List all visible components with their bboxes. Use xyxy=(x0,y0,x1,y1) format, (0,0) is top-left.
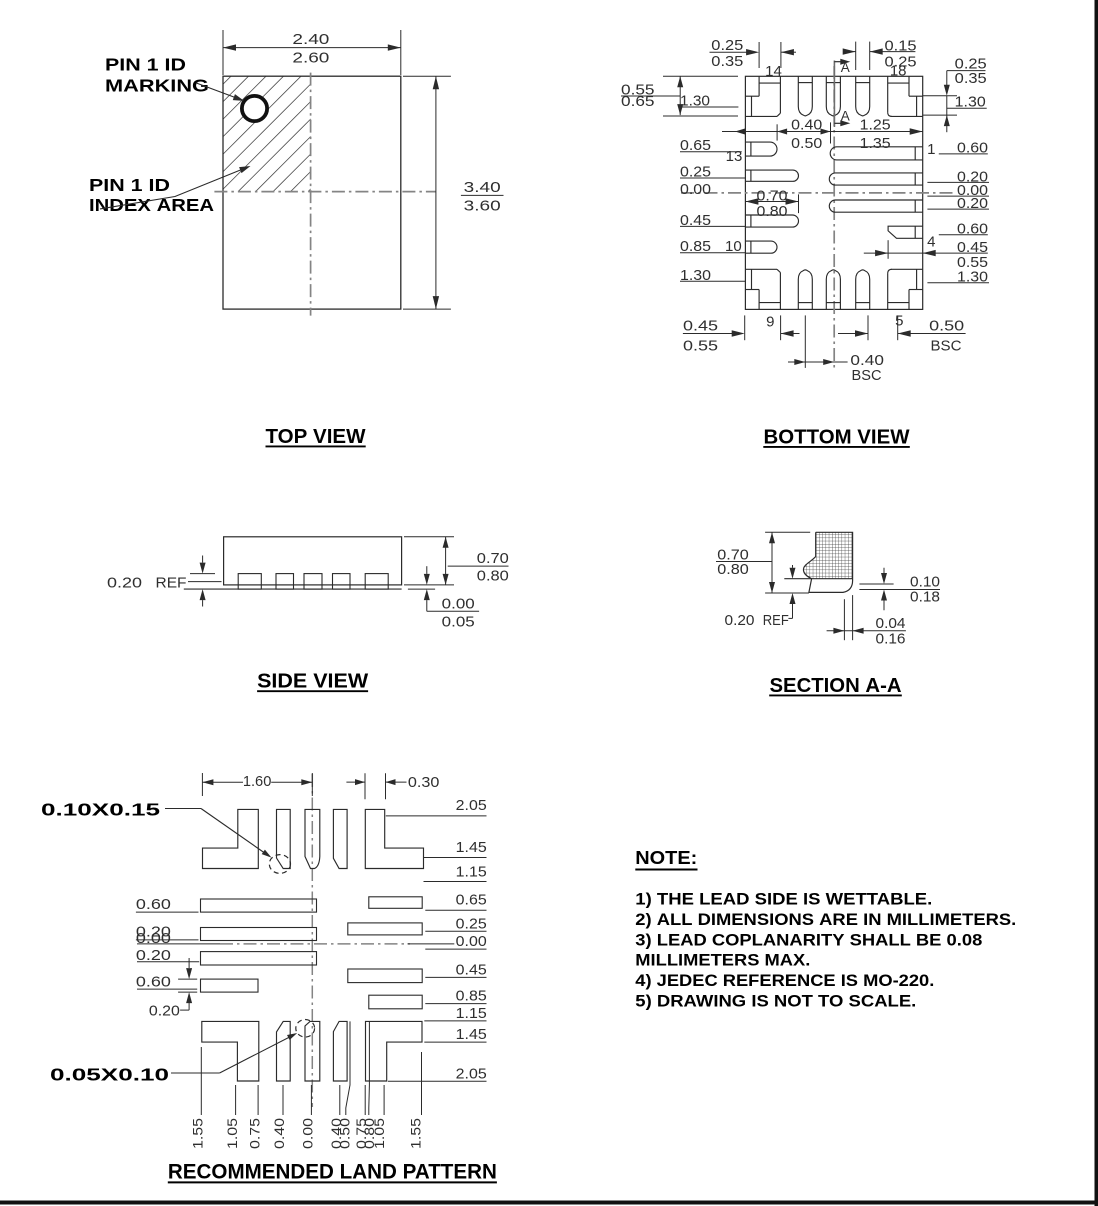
svg-text:0.45: 0.45 xyxy=(456,961,487,978)
svg-text:0.75: 0.75 xyxy=(246,1118,262,1149)
svg-text:2.40: 2.40 xyxy=(292,31,329,48)
svg-text:1.55: 1.55 xyxy=(407,1118,423,1149)
svg-text:14: 14 xyxy=(765,63,782,80)
svg-text:RECOMMENDED LAND PATTERN: RECOMMENDED LAND PATTERN xyxy=(168,1160,497,1183)
svg-text:0.30: 0.30 xyxy=(408,774,440,791)
svg-text:0.18: 0.18 xyxy=(910,589,940,606)
svg-text:1.45: 1.45 xyxy=(456,1026,487,1043)
svg-text:4: 4 xyxy=(927,233,935,250)
svg-text:0.80: 0.80 xyxy=(757,203,788,220)
svg-text:5: 5 xyxy=(895,313,903,330)
svg-text:REF: REF xyxy=(763,612,789,629)
svg-text:4) JEDEC REFERENCE IS MO-220.: 4) JEDEC REFERENCE IS MO-220. xyxy=(635,971,934,990)
svg-text:2.60: 2.60 xyxy=(292,50,329,67)
svg-text:0.00: 0.00 xyxy=(680,181,711,198)
svg-text:0.65: 0.65 xyxy=(456,891,487,908)
svg-text:0.20: 0.20 xyxy=(107,575,142,592)
svg-text:1: 1 xyxy=(927,141,935,158)
svg-text:1.15: 1.15 xyxy=(456,863,487,880)
svg-text:0.25: 0.25 xyxy=(885,53,917,70)
svg-text:0.20: 0.20 xyxy=(149,1003,180,1020)
svg-text:0.60: 0.60 xyxy=(136,896,171,913)
svg-text:1.55: 1.55 xyxy=(190,1118,206,1149)
svg-text:INDEX AREA: INDEX AREA xyxy=(89,195,214,215)
svg-text:PIN 1 ID: PIN 1 ID xyxy=(89,175,170,195)
svg-text:0.00: 0.00 xyxy=(442,595,475,612)
svg-text:2.05: 2.05 xyxy=(456,1065,487,1082)
svg-text:0.40: 0.40 xyxy=(271,1118,287,1149)
svg-text:1.05: 1.05 xyxy=(224,1118,240,1149)
svg-text:BOTTOM VIEW: BOTTOM VIEW xyxy=(764,426,911,449)
svg-text:0.80: 0.80 xyxy=(717,561,749,578)
svg-text:MARKING: MARKING xyxy=(105,76,209,96)
svg-text:SIDE VIEW: SIDE VIEW xyxy=(257,670,369,693)
svg-text:A: A xyxy=(841,60,850,75)
svg-text:0.35: 0.35 xyxy=(711,53,743,70)
svg-text:0.60: 0.60 xyxy=(136,973,171,990)
svg-text:0.80: 0.80 xyxy=(477,568,509,585)
svg-text:9: 9 xyxy=(766,314,774,331)
svg-text:3.40: 3.40 xyxy=(464,179,501,196)
svg-text:5) DRAWING IS NOT TO SCALE.: 5) DRAWING IS NOT TO SCALE. xyxy=(635,992,916,1011)
svg-text:3.60: 3.60 xyxy=(464,198,501,215)
svg-text:0.05X0.10: 0.05X0.10 xyxy=(50,1064,169,1084)
svg-text:1.45: 1.45 xyxy=(456,839,487,856)
svg-text:SECTION A-A: SECTION A-A xyxy=(770,674,902,697)
svg-text:13: 13 xyxy=(726,148,743,165)
svg-text:0.00: 0.00 xyxy=(456,933,487,950)
svg-text:0.55: 0.55 xyxy=(683,337,718,354)
svg-text:0.40: 0.40 xyxy=(791,117,822,134)
svg-text:1.35: 1.35 xyxy=(860,135,891,152)
svg-text:0.50: 0.50 xyxy=(336,1118,352,1149)
svg-text:0.35: 0.35 xyxy=(955,70,987,87)
svg-text:0.50: 0.50 xyxy=(791,135,822,152)
svg-text:1.05: 1.05 xyxy=(371,1118,387,1149)
svg-text:0.20: 0.20 xyxy=(725,612,755,629)
svg-text:0.25: 0.25 xyxy=(456,915,487,932)
svg-text:0.85: 0.85 xyxy=(456,988,487,1005)
svg-text:0.16: 0.16 xyxy=(876,631,906,648)
svg-text:2.05: 2.05 xyxy=(456,797,487,814)
svg-text:REF: REF xyxy=(156,575,187,592)
svg-text:1.25: 1.25 xyxy=(860,117,891,134)
svg-text:TOP VIEW: TOP VIEW xyxy=(266,425,367,448)
svg-text:1.15: 1.15 xyxy=(456,1005,487,1022)
svg-text:0.25: 0.25 xyxy=(711,37,743,54)
svg-text:0.05: 0.05 xyxy=(442,614,475,631)
svg-text:1.60: 1.60 xyxy=(243,773,272,790)
svg-text:0.10X0.15: 0.10X0.15 xyxy=(41,800,160,820)
svg-text:0.00: 0.00 xyxy=(300,1118,316,1149)
svg-text:0.45: 0.45 xyxy=(683,318,718,335)
svg-text:0.00: 0.00 xyxy=(136,930,171,947)
svg-text:1) THE LEAD SIDE IS WETTABLE.: 1) THE LEAD SIDE IS WETTABLE. xyxy=(635,890,932,909)
svg-text:0.04: 0.04 xyxy=(876,615,906,632)
svg-text:PIN 1 ID: PIN 1 ID xyxy=(105,55,186,75)
svg-text:A: A xyxy=(841,109,850,124)
svg-text:BSC: BSC xyxy=(931,337,962,354)
svg-text:0.70: 0.70 xyxy=(477,550,509,567)
svg-text:0.50: 0.50 xyxy=(929,318,964,335)
svg-text:0.65: 0.65 xyxy=(621,93,655,110)
svg-text:NOTE:: NOTE: xyxy=(635,847,697,868)
svg-text:3) LEAD COPLANARITY SHALL BE 0: 3) LEAD COPLANARITY SHALL BE 0.08 xyxy=(635,930,982,949)
svg-text:BSC: BSC xyxy=(852,367,882,384)
svg-text:MILLIMETERS MAX.: MILLIMETERS MAX. xyxy=(635,951,810,970)
svg-text:2) ALL DIMENSIONS ARE IN MILLI: 2) ALL DIMENSIONS ARE IN MILLIMETERS. xyxy=(635,910,1016,929)
